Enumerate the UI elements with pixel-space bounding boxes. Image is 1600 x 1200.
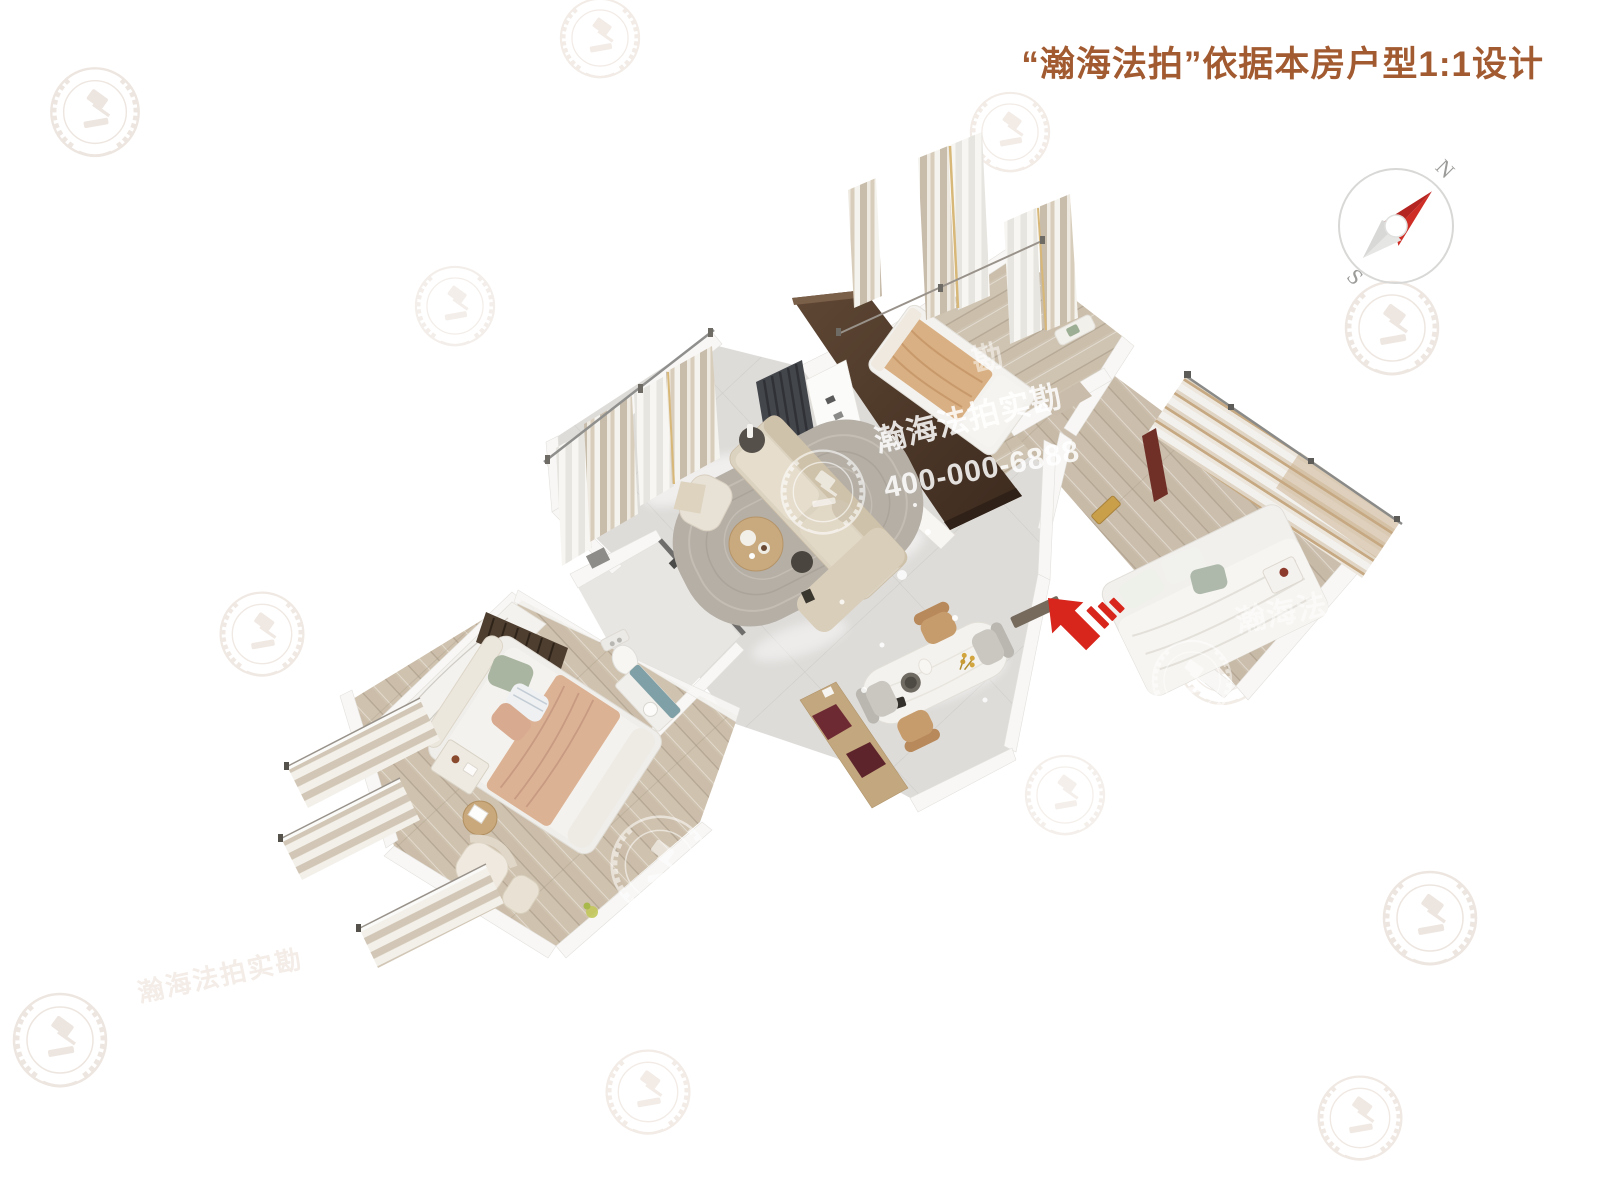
compass-south-label: S	[1342, 264, 1368, 290]
floorplan-page: 瀚海法拍实勘	[0, 0, 1600, 1200]
compass-north-label: N	[1431, 154, 1460, 183]
floorplan-svg: 瀚海法拍实勘	[0, 0, 1600, 1200]
page-title: “瀚海法拍”依据本房户型1:1设计	[1021, 36, 1544, 87]
compass-needle	[1353, 181, 1443, 269]
side-table-west	[463, 801, 497, 835]
compass-icon: N S	[1339, 154, 1460, 290]
background-watermark-text: 瀚海法拍实勘	[135, 944, 306, 1008]
coffee-table	[729, 517, 783, 571]
stool	[791, 551, 813, 573]
